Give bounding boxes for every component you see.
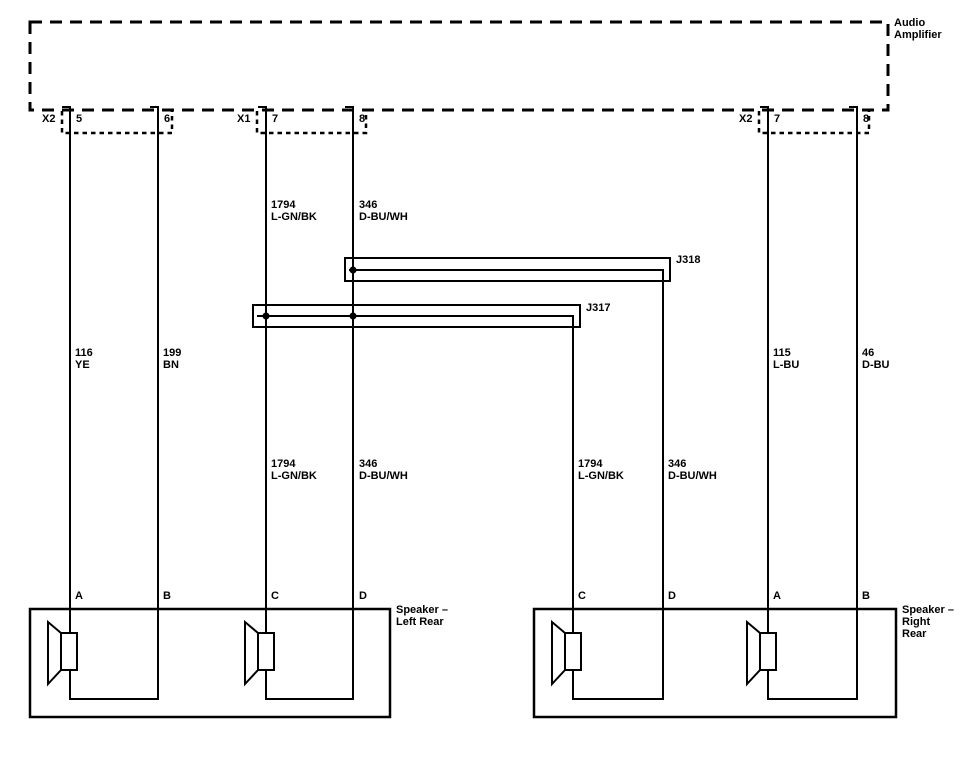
wire-label-199: 199 BN — [163, 347, 181, 371]
speaker-cone-icon — [48, 622, 61, 684]
amplifier-label-line1: Audio — [894, 17, 942, 29]
right-speaker-pin-d: D — [668, 590, 676, 602]
left-speaker-pin-a: A — [75, 590, 83, 602]
wiring-diagram: Audio Amplifier X2 5 6 X1 7 8 X2 7 8 179… — [0, 0, 967, 757]
amplifier-label-line2: Amplifier — [894, 29, 942, 41]
speaker-left-rear-box — [30, 609, 390, 717]
wire-circuit: 1794 — [271, 458, 317, 470]
splice-j318-label: J318 — [676, 254, 700, 266]
pin-8-right-label: 8 — [863, 113, 869, 125]
wire-199-bn — [150, 107, 158, 609]
wire-label-1794-lower-right: 1794 L-GN/BK — [578, 458, 624, 482]
wire-color: D-BU/WH — [359, 470, 408, 482]
speaker-label-line3: Rear — [902, 628, 954, 640]
speaker-right-rear-label: Speaker – Right Rear — [902, 604, 954, 640]
wire-1794-lgnbk-left — [258, 107, 266, 609]
splice-j317-label: J317 — [586, 302, 610, 314]
junction-dot-j317-mid — [350, 313, 357, 320]
pin-7-left-label: 7 — [272, 113, 278, 125]
wire-circuit: 115 — [773, 347, 799, 359]
wire-label-346-lower-right: 346 D-BU/WH — [668, 458, 717, 482]
speaker-circuit-right-ab — [768, 609, 857, 699]
wire-color: D-BU/WH — [668, 470, 717, 482]
wire-color: D-BU — [862, 359, 890, 371]
left-speaker-pin-b: B — [163, 590, 171, 602]
pin-7-right-label: 7 — [774, 113, 780, 125]
connector-x2-right-label: X2 — [739, 113, 752, 125]
wire-label-1794-lower-left: 1794 L-GN/BK — [271, 458, 317, 482]
wire-color: BN — [163, 359, 181, 371]
junction-dot-j318 — [350, 267, 357, 274]
speaker-circuit-left-ab — [70, 609, 158, 699]
pin-5-label: 5 — [76, 113, 82, 125]
wire-circuit: 1794 — [271, 199, 317, 211]
amplifier-label: Audio Amplifier — [894, 17, 942, 41]
speaker-circuit-right-cd — [573, 609, 663, 699]
right-speaker-pin-b: B — [862, 590, 870, 602]
speaker-cone-icon — [245, 622, 258, 684]
wire-116-ye — [62, 107, 70, 609]
wire-label-346-lower-left: 346 D-BU/WH — [359, 458, 408, 482]
speaker-cone-icon — [552, 622, 565, 684]
speaker-circuit-left-cd — [266, 609, 353, 699]
pin-6-label: 6 — [164, 113, 170, 125]
wire-115-lbu — [760, 107, 768, 609]
right-speaker-pin-a: A — [773, 590, 781, 602]
wire-circuit: 199 — [163, 347, 181, 359]
junction-dot-j317-left — [263, 313, 270, 320]
speaker-left-rear-label: Speaker – Left Rear — [396, 604, 448, 628]
speaker-right-rear-box — [534, 609, 896, 717]
diagram-geometry — [0, 0, 967, 757]
speaker-label-line2: Left Rear — [396, 616, 448, 628]
speaker-label-line1: Speaker – — [902, 604, 954, 616]
wire-color: D-BU/WH — [359, 211, 408, 223]
wire-circuit: 1794 — [578, 458, 624, 470]
wire-circuit: 346 — [359, 458, 408, 470]
wire-color: L-GN/BK — [578, 470, 624, 482]
wire-346-dbuwh-left — [345, 107, 353, 609]
wire-346-dbuwh-right-branch-j318 — [349, 270, 663, 609]
speaker-label-line2: Right — [902, 616, 954, 628]
wire-circuit: 116 — [75, 347, 93, 359]
speaker-cone-icon — [747, 622, 760, 684]
wire-color: L-GN/BK — [271, 470, 317, 482]
wire-circuit: 46 — [862, 347, 890, 359]
wire-label-115: 115 L-BU — [773, 347, 799, 371]
connector-x1-label: X1 — [237, 113, 250, 125]
connector-x2-left-label: X2 — [42, 113, 55, 125]
wire-color: L-GN/BK — [271, 211, 317, 223]
left-speaker-pin-d: D — [359, 590, 367, 602]
wire-46-dbu — [849, 107, 857, 609]
audio-amplifier-outline — [30, 22, 888, 110]
wire-label-116: 116 YE — [75, 347, 93, 371]
wire-color: YE — [75, 359, 93, 371]
speaker-driver-icon — [760, 633, 776, 670]
wire-label-46: 46 D-BU — [862, 347, 890, 371]
speaker-driver-icon — [61, 633, 77, 670]
speaker-driver-icon — [565, 633, 581, 670]
right-speaker-pin-c: C — [578, 590, 586, 602]
speaker-label-line1: Speaker – — [396, 604, 448, 616]
wire-label-346-top: 346 D-BU/WH — [359, 199, 408, 223]
wire-circuit: 346 — [359, 199, 408, 211]
speaker-driver-icon — [258, 633, 274, 670]
wire-circuit: 346 — [668, 458, 717, 470]
left-speaker-pin-c: C — [271, 590, 279, 602]
wire-color: L-BU — [773, 359, 799, 371]
pin-8-left-label: 8 — [359, 113, 365, 125]
wire-label-1794-top: 1794 L-GN/BK — [271, 199, 317, 223]
